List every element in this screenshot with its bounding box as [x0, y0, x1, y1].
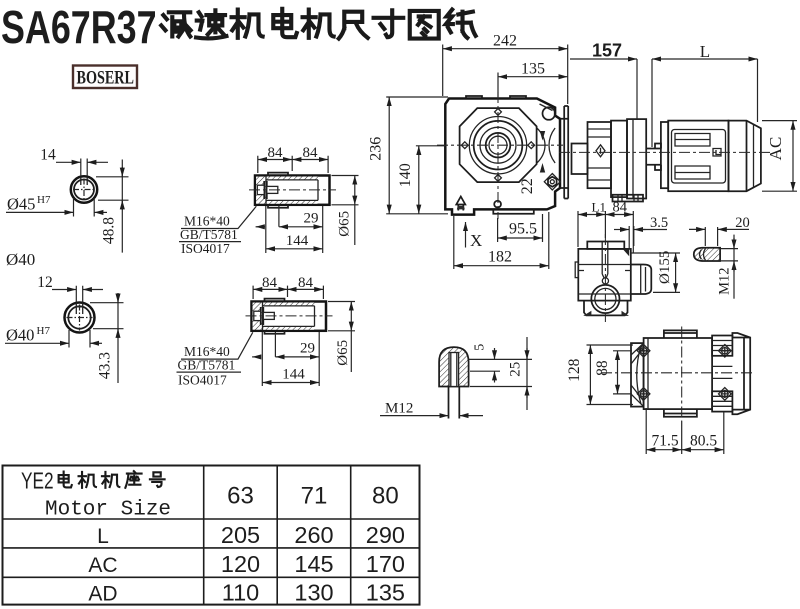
svg-text:X: X	[470, 231, 482, 250]
svg-text:L: L	[700, 42, 710, 61]
svg-text:14: 14	[40, 147, 56, 164]
svg-text:5: 5	[473, 344, 488, 351]
svg-text:144: 144	[282, 367, 305, 383]
svg-text:20: 20	[735, 215, 750, 231]
svg-text:YE2: YE2	[21, 469, 54, 494]
svg-text:22: 22	[519, 178, 536, 194]
svg-text:H7: H7	[37, 325, 51, 337]
svg-text:43.3: 43.3	[97, 352, 114, 379]
svg-text:H7: H7	[37, 194, 51, 206]
svg-text:29: 29	[300, 341, 315, 357]
svg-text:L: L	[97, 525, 109, 548]
svg-text:84: 84	[268, 145, 284, 161]
svg-text:71: 71	[301, 483, 328, 510]
svg-text:Ø40: Ø40	[6, 250, 35, 269]
svg-text:170: 170	[366, 551, 405, 577]
svg-text:110: 110	[222, 580, 259, 606]
svg-text:ISO4017: ISO4017	[178, 373, 227, 388]
svg-text:80: 80	[372, 483, 399, 510]
svg-text:48.8: 48.8	[101, 217, 118, 244]
svg-text:GB/T5781: GB/T5781	[178, 357, 236, 372]
svg-text:25: 25	[508, 362, 524, 377]
svg-text:260: 260	[294, 522, 333, 548]
svg-text:63: 63	[227, 483, 254, 510]
svg-text:Ø40: Ø40	[6, 326, 34, 345]
svg-text:140: 140	[397, 163, 414, 187]
svg-text:AD: AD	[88, 583, 117, 606]
svg-text:84: 84	[298, 275, 314, 291]
svg-text:157: 157	[592, 41, 622, 61]
svg-text:29: 29	[304, 211, 319, 227]
svg-text:128: 128	[566, 358, 583, 382]
svg-text:88: 88	[594, 360, 611, 376]
svg-text:12: 12	[37, 274, 53, 291]
svg-text:ISO4017: ISO4017	[181, 241, 230, 256]
svg-text:135: 135	[521, 61, 545, 78]
svg-text:84: 84	[613, 200, 628, 216]
svg-text:3.5: 3.5	[650, 215, 668, 231]
svg-text:Ø45: Ø45	[7, 195, 35, 214]
svg-text:AC: AC	[88, 554, 117, 577]
svg-text:Ø65: Ø65	[335, 340, 351, 366]
svg-text:130: 130	[294, 580, 333, 606]
svg-text:L1: L1	[592, 200, 606, 215]
svg-text:290: 290	[366, 522, 405, 548]
svg-text:120: 120	[221, 551, 260, 577]
svg-text:95.5: 95.5	[509, 221, 537, 238]
svg-text:M12: M12	[385, 401, 413, 417]
svg-text:BOSERL: BOSERL	[77, 69, 135, 89]
svg-text:Ø65: Ø65	[336, 211, 352, 237]
svg-text:SA67R37: SA67R37	[1, 2, 157, 53]
svg-text:GB/T5781: GB/T5781	[180, 227, 238, 242]
svg-text:145: 145	[294, 551, 333, 577]
svg-text:71.5: 71.5	[651, 433, 678, 450]
svg-text:135: 135	[366, 580, 405, 606]
svg-text:AC: AC	[766, 137, 785, 161]
svg-text:242: 242	[493, 33, 517, 50]
svg-text:Motor Size: Motor Size	[45, 499, 171, 522]
svg-text:84: 84	[303, 145, 319, 161]
svg-text:84: 84	[262, 275, 278, 291]
svg-text:236: 236	[368, 137, 385, 161]
svg-text:M12: M12	[717, 267, 733, 294]
svg-text:205: 205	[221, 522, 260, 548]
svg-text:144: 144	[286, 233, 309, 249]
svg-text:182: 182	[488, 249, 512, 266]
svg-text:Ø155: Ø155	[657, 251, 673, 284]
svg-text:80.5: 80.5	[690, 433, 717, 450]
